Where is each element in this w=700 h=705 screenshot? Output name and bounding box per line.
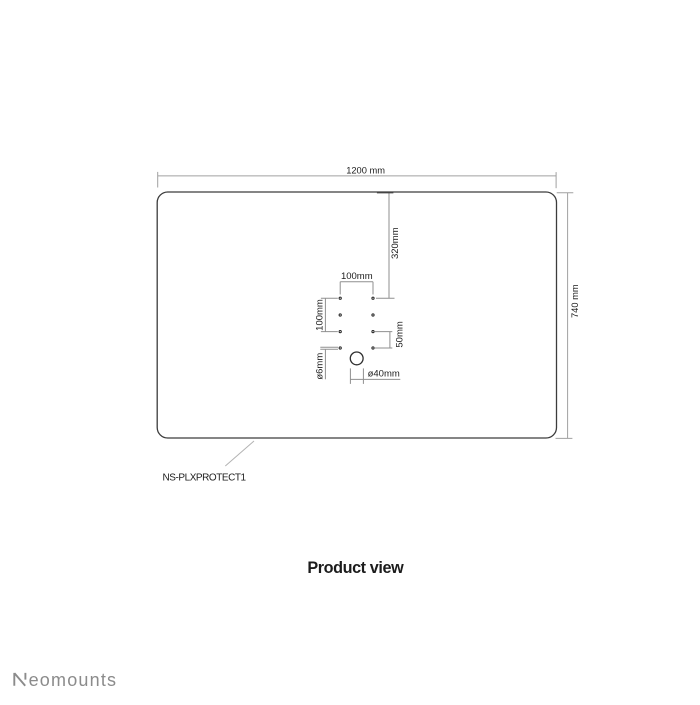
svg-text:NS-PLXPROTECT1: NS-PLXPROTECT1 [163,473,247,484]
svg-text:100mm: 100mm [341,271,373,282]
svg-text:ø6mm: ø6mm [315,353,326,380]
svg-text:740 mm: 740 mm [570,284,580,318]
svg-text:320mm: 320mm [390,227,401,259]
svg-text:Product view: Product view [307,559,404,577]
svg-text:100mm: 100mm [315,299,326,331]
svg-text:1200 mm: 1200 mm [346,166,385,176]
svg-text:ø40mm: ø40mm [368,369,400,380]
svg-text:50mm: 50mm [395,321,406,347]
svg-text:eomounts: eomounts [29,670,118,690]
